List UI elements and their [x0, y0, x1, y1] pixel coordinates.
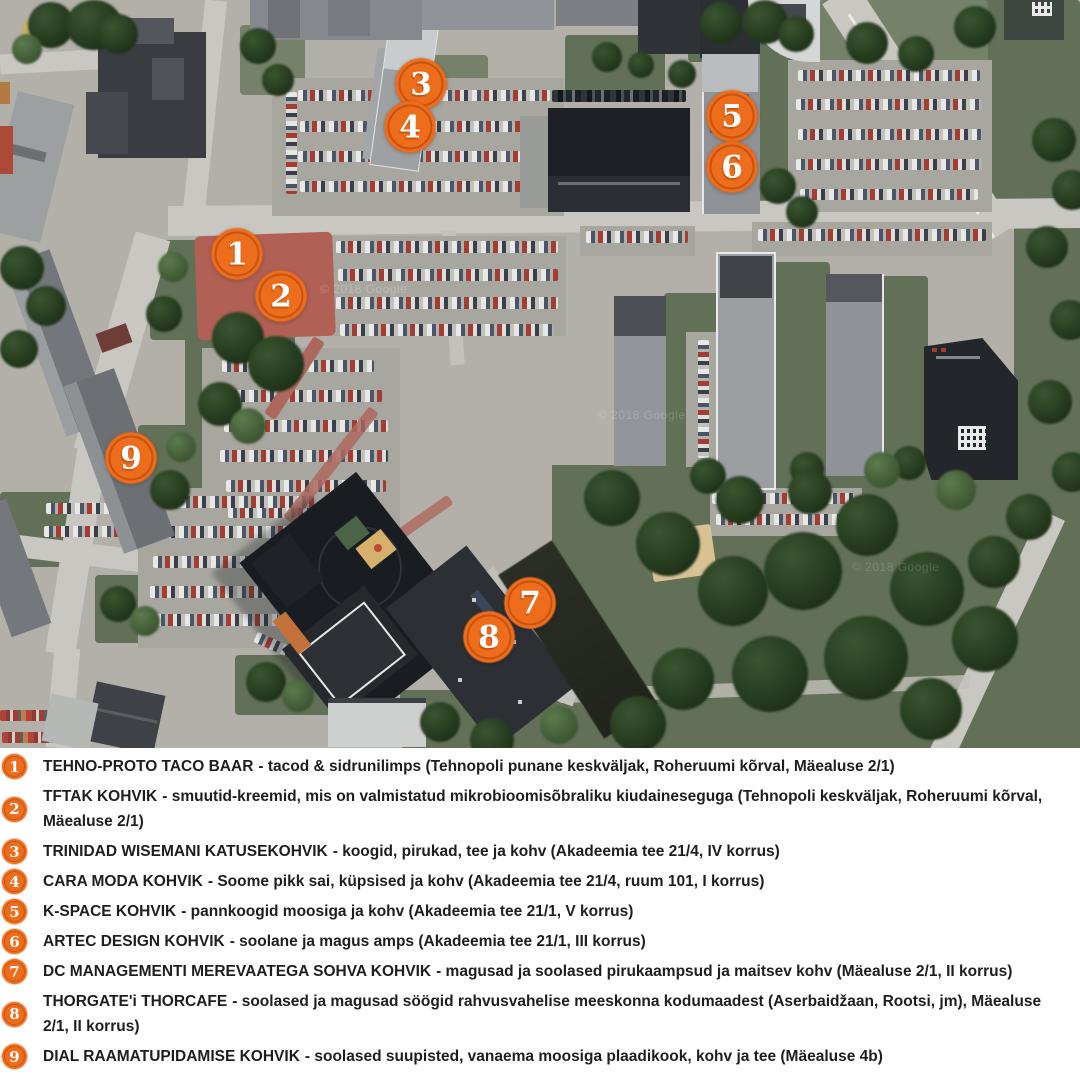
legend-item-text: K-SPACE KOHVIK- pannkoogid moosiga ja ko… — [43, 899, 633, 924]
cafe-description: - smuutid-kreemid, mis on valmistatud mi… — [43, 788, 1042, 830]
map-building — [422, 0, 554, 30]
map-tree — [668, 60, 696, 88]
map-building — [0, 126, 13, 174]
cafe-name: TRINIDAD WISEMANI KATUSEKOHVIK — [43, 843, 328, 860]
map-tree — [12, 34, 42, 64]
legend-item: 6 ARTEC DESIGN KOHVIK- soolane ja magus … — [2, 929, 1062, 954]
legend-item-text: DC MANAGEMENTI MEREVAATEGA SOHVA KOHVIK-… — [43, 959, 1012, 984]
map-building — [924, 338, 1018, 480]
map-building — [702, 54, 758, 92]
map-tree — [652, 648, 714, 710]
map-car-row — [220, 450, 388, 462]
map-car-row — [798, 129, 982, 140]
legend-item-text: TRINIDAD WISEMANI KATUSEKOHVIK- koogid, … — [43, 839, 780, 864]
map-tree — [246, 662, 286, 702]
map-building — [826, 274, 882, 302]
map-car-row — [586, 231, 688, 243]
map-tree — [1028, 380, 1072, 424]
map-car-row — [336, 241, 558, 253]
legend-item-number: 4 — [2, 869, 27, 894]
map-tree — [262, 64, 294, 96]
map-tree — [732, 636, 808, 712]
map-car-row — [286, 92, 297, 194]
map-marker-8: 8 — [464, 612, 515, 663]
legend-item-text: CARA MODA KOHVIK- Soome pikk sai, küpsis… — [43, 869, 764, 894]
map-tree — [628, 52, 654, 78]
map-tree — [150, 470, 190, 510]
map-tree — [864, 452, 900, 488]
map-tree — [166, 432, 196, 462]
cafes-map-infographic: © 2018 Google © 2018 Google © 2018 Googl… — [0, 0, 1080, 1080]
cafe-name: K-SPACE KOHVIK — [43, 903, 176, 920]
map-tree — [786, 196, 818, 228]
map-tree — [900, 678, 962, 740]
map-detail — [374, 544, 382, 552]
map-car-row — [340, 324, 554, 336]
cafe-name: TEHNO-PROTO TACO BAAR — [43, 758, 253, 775]
legend-item-text: ARTEC DESIGN KOHVIK- soolane ja magus am… — [43, 929, 646, 954]
map-marker-4: 4 — [385, 102, 436, 153]
cafe-description: - soolane ja magus amps (Akadeemia tee 2… — [230, 933, 646, 950]
map-tree — [1006, 494, 1052, 540]
map-building — [86, 92, 128, 154]
map-tree — [952, 606, 1018, 672]
cafe-description: - soolased suupisted, vanaema moosiga pl… — [305, 1048, 883, 1065]
map-grass — [772, 262, 830, 477]
map-detail — [936, 356, 980, 359]
legend-item: 7 DC MANAGEMENTI MEREVAATEGA SOHVA KOHVI… — [2, 959, 1062, 984]
map-tree — [1032, 118, 1076, 162]
map-building — [42, 694, 99, 748]
map-car-row — [338, 269, 558, 281]
cafe-name: TFTAK KOHVIK — [43, 788, 157, 805]
map-tree — [282, 680, 314, 712]
map-detail — [472, 598, 476, 602]
map-tree — [824, 616, 908, 700]
map-building — [0, 82, 10, 104]
map-tree — [954, 6, 996, 48]
map-building — [720, 256, 772, 298]
legend-item-number: 8 — [2, 1002, 27, 1027]
map-tree — [636, 512, 700, 576]
cafe-description: - magusad ja soolased pirukaampsud ja ma… — [436, 963, 1012, 980]
legend-item-number: 9 — [2, 1044, 27, 1069]
cafe-description: - Soome pikk sai, küpsised ja kohv (Akad… — [208, 873, 765, 890]
map-tree — [760, 168, 796, 204]
map-detail — [458, 678, 462, 682]
map-building — [520, 116, 550, 208]
map-building — [328, 0, 370, 36]
map-tree — [610, 696, 666, 748]
legend-item-text: DIAL RAAMATUPIDAMISE KOHVIK- soolased su… — [43, 1044, 883, 1069]
cafe-description: - pannkoogid moosiga ja kohv (Akadeemia … — [181, 903, 633, 920]
legend-item-number: 2 — [2, 797, 27, 822]
map-building — [638, 0, 702, 54]
map-tree — [778, 16, 814, 52]
map-tree — [230, 408, 266, 444]
legend-item-text: TEHNO-PROTO TACO BAAR- tacod & sidrunili… — [43, 754, 895, 779]
map-building — [152, 58, 184, 100]
map-marker-1: 1 — [212, 229, 263, 280]
map-watermark: © 2018 Google — [598, 408, 685, 422]
map-detail — [941, 348, 946, 352]
legend-item-number: 3 — [2, 839, 27, 864]
map-marker-6: 6 — [707, 142, 758, 193]
cafe-name: DC MANAGEMENTI MEREVAATEGA SOHVA KOHVIK — [43, 963, 431, 980]
map-tree — [146, 296, 182, 332]
map-tree — [248, 336, 304, 392]
map-tree — [788, 470, 832, 514]
map-roof-vents — [1032, 2, 1052, 16]
map-tree — [158, 252, 188, 282]
map-car-row — [552, 90, 686, 102]
map-tree — [540, 706, 578, 744]
map-marker-5: 5 — [707, 91, 758, 142]
map-tree — [764, 532, 842, 610]
map-building — [614, 296, 666, 336]
map-car-row — [298, 151, 550, 162]
legend-item: 8 THORGATE'i THORCAFE- soolased ja magus… — [2, 989, 1062, 1039]
legend-item-text: TFTAK KOHVIK- smuutid-kreemid, mis on va… — [43, 784, 1058, 834]
map-car-row — [796, 99, 982, 110]
map-car-row — [220, 390, 382, 402]
legend-item-text: THORGATE'i THORCAFE- soolased ja magusad… — [43, 989, 1058, 1039]
legend: 1 TEHNO-PROTO TACO BAAR- tacod & sidruni… — [0, 748, 1080, 1080]
legend-item: 9 DIAL RAAMATUPIDAMISE KOHVIK- soolased … — [2, 1044, 1062, 1069]
map-tree — [98, 14, 138, 54]
map-marker-2: 2 — [256, 271, 307, 322]
legend-item-number: 5 — [2, 899, 27, 924]
map-building — [268, 0, 300, 38]
map-tree — [836, 494, 898, 556]
map-detail — [932, 348, 937, 352]
map-tree — [698, 556, 768, 626]
map-car-row — [336, 297, 558, 309]
satellite-map: © 2018 Google © 2018 Google © 2018 Googl… — [0, 0, 1080, 748]
map-tree — [716, 476, 764, 524]
cafe-name: DIAL RAAMATUPIDAMISE KOHVIK — [43, 1048, 300, 1065]
legend-item: 2 TFTAK KOHVIK- smuutid-kreemid, mis on … — [2, 784, 1062, 834]
map-detail — [518, 700, 522, 704]
map-tree — [936, 470, 976, 510]
map-car-row — [758, 229, 986, 241]
map-tree — [130, 606, 160, 636]
map-marker-9: 9 — [106, 433, 157, 484]
map-tree — [26, 286, 66, 326]
map-tree — [0, 246, 44, 290]
map-marker-7: 7 — [505, 578, 556, 629]
map-car-row — [698, 340, 709, 458]
cafe-name: CARA MODA KOHVIK — [43, 873, 203, 890]
map-tree — [0, 330, 38, 368]
map-car-row — [300, 181, 550, 192]
map-building — [826, 274, 884, 476]
cafe-name: ARTEC DESIGN KOHVIK — [43, 933, 225, 950]
cafe-description: - tacod & sidrunilimps (Tehnopoli punane… — [258, 758, 894, 775]
map-building — [558, 182, 680, 185]
map-car-row — [798, 70, 980, 81]
legend-item: 3 TRINIDAD WISEMANI KATUSEKOHVIK- koogid… — [2, 839, 1062, 864]
map-tree — [584, 470, 640, 526]
map-car-row — [796, 159, 982, 170]
cafe-description: - koogid, pirukad, tee ja kohv (Akadeemi… — [333, 843, 780, 860]
map-tree — [420, 702, 460, 742]
map-building — [328, 698, 426, 747]
legend-item: 1 TEHNO-PROTO TACO BAAR- tacod & sidruni… — [2, 754, 1062, 779]
map-watermark: © 2018 Google — [852, 560, 939, 574]
map-roof-vents — [958, 426, 986, 450]
map-tree — [1026, 226, 1068, 268]
legend-item-number: 7 — [2, 959, 27, 984]
map-tree — [700, 2, 742, 44]
map-tree — [968, 536, 1020, 588]
map-car-row — [800, 189, 978, 200]
map-watermark: © 2018 Google — [320, 282, 407, 296]
map-tree — [846, 22, 888, 64]
legend-item-number: 6 — [2, 929, 27, 954]
map-tree — [240, 28, 276, 64]
legend-item-number: 1 — [2, 754, 27, 779]
map-tree — [592, 42, 622, 72]
legend-item: 4 CARA MODA KOHVIK- Soome pikk sai, küps… — [2, 869, 1062, 894]
map-tree — [898, 36, 934, 72]
map-building — [556, 0, 642, 26]
cafe-name: THORGATE'i THORCAFE — [43, 993, 227, 1010]
legend-item: 5 K-SPACE KOHVIK- pannkoogid moosiga ja … — [2, 899, 1062, 924]
